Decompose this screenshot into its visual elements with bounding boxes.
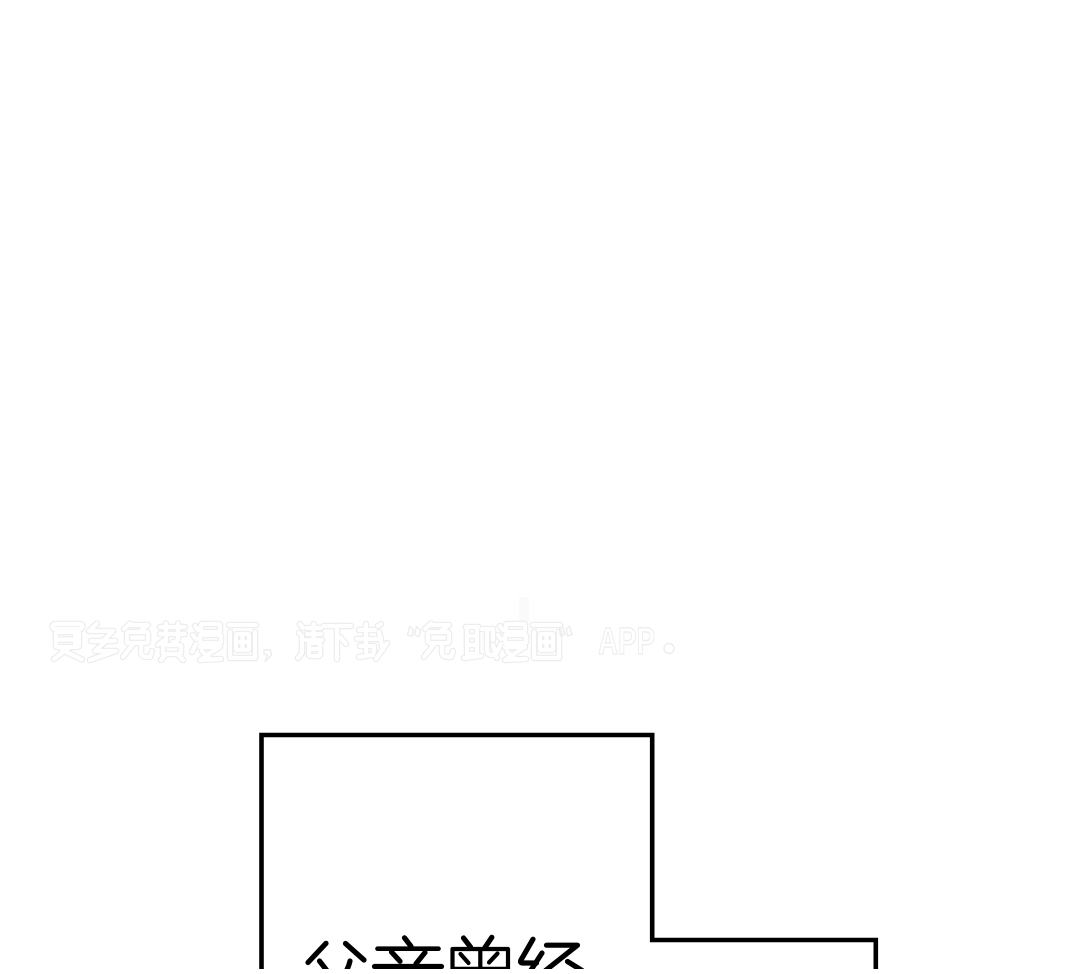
svg-text:APP: APP [598,621,655,663]
